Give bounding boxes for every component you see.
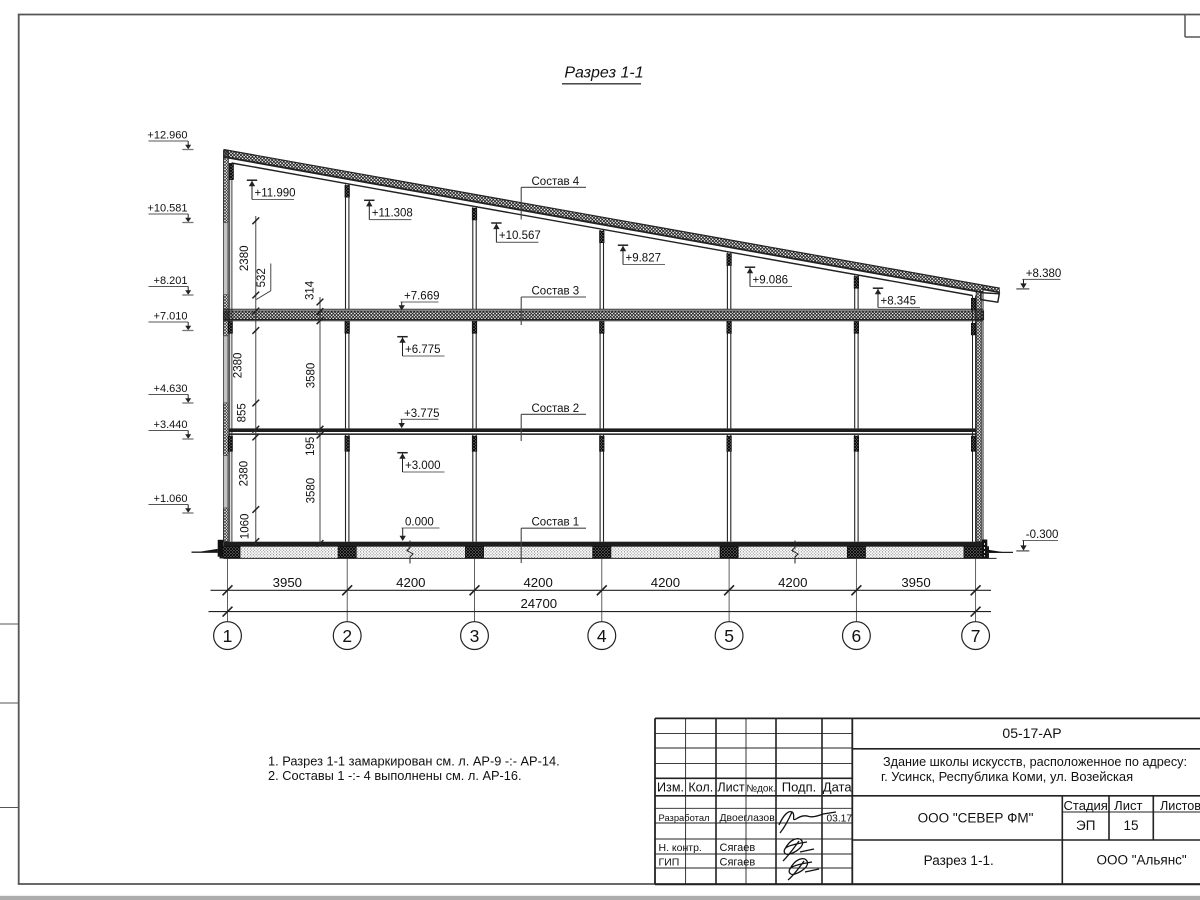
svg-text:Состав 3: Состав 3 [532, 286, 580, 298]
svg-text:+10.581: +10.581 [147, 203, 187, 215]
svg-text:3950: 3950 [273, 575, 302, 590]
svg-text:2380: 2380 [233, 353, 245, 379]
svg-text:Двоеглазов: Двоеглазов [720, 813, 776, 824]
svg-text:6: 6 [852, 626, 862, 646]
svg-text:Лист: Лист [717, 781, 745, 795]
svg-text:+3.440: +3.440 [154, 419, 188, 431]
svg-text:4200: 4200 [523, 575, 552, 590]
svg-text:Лист: Лист [1114, 798, 1142, 813]
svg-text:855: 855 [236, 403, 248, 422]
svg-text:+4.630: +4.630 [154, 383, 188, 395]
svg-text:5: 5 [724, 626, 734, 646]
svg-text:Состав 2: Состав 2 [532, 403, 580, 415]
svg-text:195: 195 [305, 437, 317, 456]
svg-text:24700: 24700 [520, 596, 557, 611]
svg-text:2380: 2380 [239, 246, 251, 272]
svg-text:+9.086: +9.086 [753, 274, 789, 286]
svg-text:№док.: №док. [746, 784, 775, 795]
svg-text:3580: 3580 [306, 478, 318, 504]
svg-text:+6.775: +6.775 [405, 344, 441, 356]
svg-text:+7.669: +7.669 [404, 291, 440, 303]
svg-text:7: 7 [971, 626, 981, 646]
svg-text:Разработал: Разработал [659, 812, 710, 823]
svg-text:3: 3 [470, 626, 480, 646]
svg-text:Изм.: Изм. [657, 781, 684, 795]
svg-text:3580: 3580 [306, 363, 318, 389]
svg-text:+9.827: +9.827 [626, 252, 662, 264]
svg-text:Разрез 1-1.: Разрез 1-1. [924, 853, 994, 868]
svg-text:Н. контр.: Н. контр. [659, 842, 702, 854]
svg-text:Состав 1: Состав 1 [532, 517, 580, 529]
svg-text:Сягаев: Сягаев [720, 842, 756, 854]
svg-text:4200: 4200 [651, 575, 680, 590]
svg-text:2380: 2380 [239, 461, 251, 487]
svg-text:-0.300: -0.300 [1026, 529, 1059, 541]
svg-text:Подп.: Подп. [782, 780, 817, 795]
svg-text:Сягаев: Сягаев [720, 857, 756, 869]
svg-text:1. Разрез 1-1 замаркирован см.: 1. Разрез 1-1 замаркирован см. л. АР-9 -… [268, 754, 560, 769]
svg-text:+8.201: +8.201 [154, 275, 188, 287]
svg-text:+12.960: +12.960 [147, 130, 187, 142]
svg-text:314: 314 [304, 280, 316, 300]
svg-text:Состав 4: Состав 4 [532, 176, 580, 188]
svg-text:+7.010: +7.010 [154, 311, 188, 323]
svg-text:03.17: 03.17 [827, 814, 853, 825]
svg-text:1060: 1060 [239, 514, 251, 540]
svg-text:4200: 4200 [778, 575, 807, 590]
svg-text:ЭП: ЭП [1076, 818, 1095, 833]
svg-text:Стадия: Стадия [1064, 798, 1108, 813]
svg-text:+3.775: +3.775 [404, 408, 440, 420]
svg-text:ГИП: ГИП [659, 857, 680, 869]
svg-text:+10.567: +10.567 [499, 230, 541, 242]
svg-text:2. Составы 1 -:- 4 выполнены с: 2. Составы 1 -:- 4 выполнены см. л. АР-1… [268, 768, 522, 783]
svg-text:Листов: Листов [1160, 799, 1200, 813]
svg-text:+11.308: +11.308 [372, 207, 413, 219]
svg-text:г. Усинск, Республика Коми, ул: г. Усинск, Республика Коми, ул. Возейска… [881, 769, 1133, 784]
svg-text:532: 532 [256, 268, 268, 287]
svg-text:+8.345: +8.345 [881, 295, 917, 307]
svg-text:05-17-АР: 05-17-АР [1002, 725, 1061, 741]
svg-text:3950: 3950 [901, 575, 930, 590]
svg-text:1: 1 [223, 626, 233, 646]
svg-text:2: 2 [342, 626, 352, 646]
svg-text:ООО "СЕВЕР ФМ": ООО "СЕВЕР ФМ" [918, 810, 1034, 825]
svg-text:+1.060: +1.060 [154, 493, 188, 505]
svg-text:4: 4 [597, 626, 607, 646]
svg-text:0.000: 0.000 [405, 517, 434, 529]
svg-text:ООО "Альянс": ООО "Альянс" [1096, 853, 1186, 868]
svg-text:Здание школы искусств, располо: Здание школы искусств, расположенное по … [883, 755, 1187, 769]
svg-text:Дата: Дата [823, 780, 853, 795]
svg-text:+8.380: +8.380 [1026, 268, 1062, 280]
svg-text:+3.000: +3.000 [405, 460, 441, 472]
svg-text:Разрез 1-1: Разрез 1-1 [564, 65, 643, 82]
svg-text:15: 15 [1123, 818, 1138, 833]
svg-text:4200: 4200 [396, 575, 425, 590]
svg-text:+11.990: +11.990 [255, 187, 296, 199]
svg-text:Кол.: Кол. [688, 781, 713, 795]
